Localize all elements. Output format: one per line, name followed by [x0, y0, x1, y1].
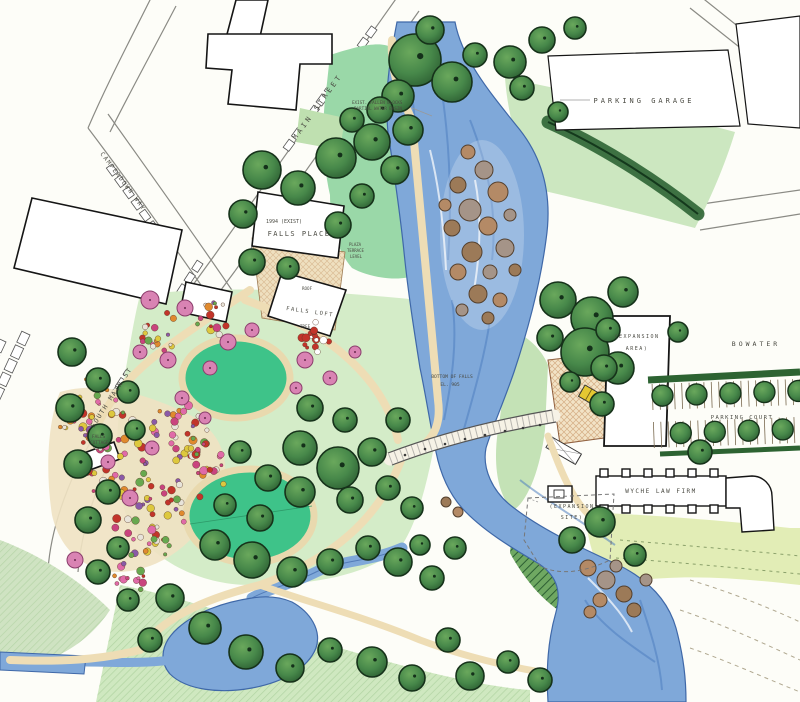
tree-center-dot	[431, 26, 434, 29]
tree-center-dot	[543, 36, 546, 39]
tree-canopy	[156, 584, 184, 612]
flower-dot	[126, 576, 130, 580]
tree-canopy	[255, 465, 281, 491]
tree-canopy	[58, 338, 86, 366]
street-tree	[686, 384, 708, 406]
flower-dot	[138, 534, 144, 540]
tree-canopy	[229, 200, 257, 228]
flower-dot	[149, 497, 152, 500]
flower-dot	[146, 477, 151, 482]
tree-center-dot	[253, 258, 256, 261]
flower-dot	[171, 418, 179, 426]
tree-canopy	[333, 408, 357, 432]
tree-center-dot	[399, 92, 403, 96]
flowering-tree-dot	[107, 461, 109, 463]
tree-canopy	[357, 647, 387, 677]
tree-canopy	[668, 322, 688, 342]
flower-dot	[92, 489, 95, 492]
tree-canopy	[537, 325, 563, 351]
tree-canopy	[381, 156, 409, 184]
boulder	[459, 199, 481, 221]
flower-dot	[180, 408, 187, 415]
tree-canopy	[624, 544, 646, 566]
tree-canopy	[317, 549, 343, 575]
tree-center-dot	[311, 404, 314, 407]
boulder	[640, 574, 652, 586]
tree-center-dot	[511, 58, 515, 62]
flower-dot	[151, 536, 157, 542]
flower-dot	[169, 431, 176, 438]
flower-dot	[198, 316, 203, 321]
flower-dot	[206, 311, 214, 319]
tree-canopy	[444, 537, 466, 559]
flower-dot	[191, 436, 195, 440]
tree-center-dot	[301, 443, 305, 447]
tree-center-dot	[71, 404, 74, 407]
tree-canopy	[337, 487, 363, 513]
street-tree	[704, 421, 726, 443]
tree-center-dot	[291, 664, 294, 667]
tree-canopy	[401, 497, 423, 519]
flower-dot	[112, 524, 119, 531]
tree-center-dot	[605, 364, 608, 367]
flower-dot	[147, 504, 155, 512]
tree-canopy	[560, 372, 580, 392]
flower-dot	[174, 507, 178, 511]
flower-dot	[167, 543, 172, 548]
flower-dot	[108, 411, 115, 418]
flower-dot	[142, 575, 145, 578]
tree-canopy	[564, 17, 586, 39]
tree-center-dot	[449, 637, 452, 640]
boulder	[461, 145, 475, 159]
label-falls-place: FALLS PLACE	[268, 230, 331, 238]
boulder	[493, 293, 507, 307]
tree-center-dot	[99, 569, 102, 572]
flower-dot	[170, 315, 176, 321]
tree-canopy	[138, 628, 162, 652]
label-terrace-note-3: LEVEL	[350, 254, 363, 259]
label-tree-note: TREE	[300, 324, 311, 329]
tree-center-dot	[609, 327, 612, 330]
label-bowater: BOWATER	[732, 340, 780, 348]
tree-canopy	[75, 507, 101, 533]
boulder	[483, 265, 497, 279]
tree-center-dot	[151, 637, 154, 640]
label-parking-garage: PARKING GARAGE	[593, 97, 694, 105]
tree-center-dot	[264, 165, 269, 170]
tree-center-dot	[340, 462, 345, 467]
flower-dot	[163, 553, 167, 557]
tree-center-dot	[89, 516, 92, 519]
flower-dot	[221, 303, 225, 307]
tree-center-dot	[601, 518, 605, 522]
flower-dot	[140, 470, 147, 477]
flower-dot	[179, 511, 184, 516]
street-tree	[738, 420, 760, 442]
flower-dot	[140, 339, 145, 344]
boulder	[488, 182, 508, 202]
tree-canopy	[384, 548, 412, 576]
flower-dot	[188, 445, 194, 451]
label-expansion-area-2: AREA)	[626, 346, 649, 352]
tree-canopy	[316, 138, 356, 178]
tree-center-dot	[389, 485, 392, 488]
flower-dot	[303, 342, 307, 346]
tree-canopy	[276, 654, 304, 682]
tree-canopy	[239, 249, 265, 275]
flower-dot	[161, 490, 167, 496]
label-expansion-site-1: (EXPANSION	[549, 504, 594, 510]
tree-center-dot	[339, 221, 342, 224]
tree-canopy	[463, 43, 487, 67]
tree-canopy	[318, 638, 342, 662]
flowering-tree-dot	[149, 299, 151, 301]
flower-dot	[176, 481, 182, 487]
flower-dot	[162, 536, 169, 543]
flower-dot	[195, 452, 199, 456]
label-wyche-law-firm: WYCHE LAW FIRM	[625, 488, 697, 495]
tree-center-dot	[353, 117, 356, 120]
tree-canopy	[107, 537, 129, 559]
street-tree	[772, 419, 794, 441]
flower-dot	[185, 431, 190, 436]
tree-center-dot	[99, 377, 102, 380]
boulder	[610, 560, 622, 572]
boulder	[439, 199, 451, 211]
label-falls-place-note: 1994 (EXIST)	[266, 219, 302, 225]
tree-center-dot	[331, 558, 334, 561]
tree-center-dot	[331, 647, 334, 650]
flower-dot	[131, 537, 135, 541]
flower-dot	[205, 303, 213, 311]
tree-center-dot	[373, 658, 377, 662]
tree-canopy	[585, 507, 615, 537]
tree-canopy	[410, 535, 430, 555]
tree-center-dot	[587, 346, 593, 352]
flower-dot	[220, 464, 223, 467]
person-dot	[404, 454, 407, 457]
tree-center-dot	[456, 545, 459, 548]
tree-center-dot	[171, 594, 174, 597]
flower-dot	[218, 451, 225, 458]
tree-center-dot	[509, 659, 512, 662]
flower-dot	[173, 445, 180, 452]
flower-dot	[137, 567, 145, 575]
label-parking-court: PARKING COURT	[711, 415, 774, 421]
flower-dot	[112, 574, 116, 578]
flower-dot	[214, 306, 217, 309]
upper-lawn	[182, 338, 290, 418]
flower-dot	[139, 579, 147, 587]
tree-center-dot	[399, 417, 402, 420]
tree-canopy	[456, 662, 484, 690]
tree-canopy	[416, 16, 444, 44]
flower-dot	[83, 433, 87, 437]
tree-center-dot	[571, 379, 573, 381]
flower-dot	[209, 325, 212, 328]
tree-center-dot	[624, 288, 628, 292]
flower-dot	[79, 426, 84, 431]
person-dot	[539, 424, 542, 427]
label-expansion-site-2: SITE)	[561, 515, 584, 521]
flower-dot	[191, 424, 195, 428]
flower-dot	[152, 419, 157, 424]
tree-center-dot	[247, 647, 251, 651]
person-dot	[464, 438, 467, 441]
street-tree	[720, 382, 742, 404]
boulder	[496, 239, 514, 257]
flower-dot	[117, 453, 123, 459]
tree-canopy	[281, 171, 315, 205]
tree-center-dot	[576, 25, 579, 28]
person-dot	[444, 443, 447, 446]
flower-dot	[137, 576, 140, 579]
tree-center-dot	[399, 558, 402, 561]
flower-dot	[62, 425, 66, 429]
street-tree	[652, 385, 674, 407]
label-expansion-area-1: (EXPANSION	[614, 334, 659, 340]
tree-canopy	[559, 527, 585, 553]
flowering-tree-dot	[204, 417, 206, 419]
tree-center-dot	[636, 552, 639, 555]
flower-dot	[310, 327, 317, 334]
flower-dot	[195, 447, 200, 452]
tree-canopy	[277, 557, 307, 587]
boulder	[479, 217, 497, 235]
flowering-tree-dot	[181, 397, 183, 399]
tree-canopy	[494, 46, 526, 78]
tree-canopy	[234, 542, 270, 578]
tree-center-dot	[119, 545, 122, 548]
tree-canopy	[189, 612, 221, 644]
flower-dot	[143, 549, 148, 554]
tree-center-dot	[346, 417, 349, 420]
tree-canopy	[214, 494, 236, 516]
flower-dot	[313, 319, 319, 325]
flower-dot	[143, 462, 146, 465]
tree-canopy	[297, 395, 323, 421]
tree-canopy	[540, 282, 576, 318]
tree-canopy	[350, 184, 374, 208]
tree-center-dot	[206, 624, 210, 628]
flower-dot	[193, 461, 200, 468]
tree-center-dot	[701, 449, 704, 452]
flower-dot	[116, 437, 121, 442]
tree-canopy	[243, 151, 281, 189]
tree-center-dot	[241, 449, 244, 452]
flowering-tree-dot	[74, 559, 76, 561]
tree-center-dot	[541, 677, 544, 680]
flower-dot	[121, 411, 125, 415]
flower-dot	[58, 425, 62, 429]
label-bottom-of-falls-1: BOTTOM OF FALLS	[431, 374, 473, 380]
tree-center-dot	[136, 427, 138, 429]
boulder	[469, 285, 487, 303]
tree-canopy	[117, 589, 139, 611]
tree-center-dot	[338, 153, 343, 158]
tree-center-dot	[454, 77, 459, 82]
flower-dot	[168, 486, 176, 494]
tree-canopy	[86, 560, 110, 584]
flower-dot	[119, 475, 125, 481]
label-river-note-1: EXIST. FALLEN BLOCKS	[352, 100, 403, 105]
tree-center-dot	[289, 265, 292, 268]
tree-canopy	[56, 394, 84, 422]
flower-dot	[213, 324, 221, 332]
flower-dot	[223, 323, 230, 330]
tree-center-dot	[109, 489, 112, 492]
boulder	[597, 571, 615, 589]
label-bottom-of-falls-2: EL. 905	[440, 382, 460, 388]
boulder	[509, 264, 521, 276]
tree-center-dot	[73, 348, 76, 351]
flower-dot	[81, 440, 85, 444]
tree-center-dot	[559, 109, 561, 111]
street-tree	[670, 422, 692, 444]
site-plan-drawing: MAIN STREET CAMPERDOWN WAY SOUTH MAIN ST…	[0, 0, 800, 702]
tree-center-dot	[261, 514, 264, 517]
label-terrace-note-1: PLAZA	[349, 242, 362, 247]
tree-canopy	[529, 27, 555, 53]
tree-canopy	[436, 628, 460, 652]
tree-canopy	[86, 368, 110, 392]
tree-center-dot	[679, 329, 681, 331]
flower-dot	[200, 467, 208, 475]
flower-dot	[115, 581, 119, 585]
tree-center-dot	[413, 505, 416, 508]
tree-center-dot	[216, 541, 220, 545]
tree-center-dot	[523, 85, 526, 88]
tree-canopy	[229, 635, 263, 669]
tree-center-dot	[363, 193, 366, 196]
tree-center-dot	[433, 575, 436, 578]
label-falls-cottage-2: COTTAGE	[90, 440, 109, 446]
boulder	[504, 209, 516, 221]
tree-canopy	[277, 257, 299, 279]
flower-dot	[213, 302, 217, 306]
tree-canopy	[376, 476, 400, 500]
tree-center-dot	[351, 496, 354, 499]
flower-dot	[142, 324, 148, 330]
tree-center-dot	[369, 545, 372, 548]
tree-center-dot	[299, 183, 303, 187]
flowering-tree-dot	[329, 377, 331, 379]
tree-center-dot	[253, 555, 257, 559]
tree-canopy	[608, 277, 638, 307]
flower-dot	[169, 343, 172, 346]
flower-dot	[202, 442, 205, 445]
tree-center-dot	[559, 295, 563, 299]
label-river-note-2: PARTIAL WATER BASIN	[354, 106, 402, 111]
tree-canopy	[200, 530, 230, 560]
flower-dot	[121, 561, 126, 566]
flowering-tree-dot	[139, 351, 141, 353]
person-dot	[424, 448, 427, 451]
tree-center-dot	[396, 166, 399, 169]
tree-canopy	[358, 438, 386, 466]
boulder	[462, 242, 482, 262]
flowering-tree-dot	[151, 447, 153, 449]
tree-center-dot	[619, 364, 623, 368]
flower-dot	[166, 333, 170, 337]
street-tree	[754, 381, 776, 403]
label-terrace-note-2: TERRACE	[347, 248, 364, 253]
boulder	[584, 606, 596, 618]
flower-dot	[155, 336, 161, 342]
flower-dot	[136, 478, 144, 486]
boulder	[441, 497, 451, 507]
tree-center-dot	[409, 126, 413, 130]
tree-center-dot	[551, 334, 554, 337]
tree-center-dot	[476, 52, 479, 55]
boulder	[475, 161, 493, 179]
flowering-tree-dot	[304, 359, 306, 361]
tree-center-dot	[603, 401, 606, 404]
flowering-tree-dot	[295, 387, 297, 389]
flower-dot	[207, 467, 213, 473]
flower-dot	[197, 494, 203, 500]
tree-canopy	[393, 115, 423, 145]
tree-canopy	[285, 477, 315, 507]
flower-dot	[125, 529, 132, 536]
flower-dot	[150, 344, 155, 349]
flower-dot	[181, 519, 186, 524]
tree-center-dot	[421, 542, 423, 544]
flowering-tree-dot	[251, 329, 253, 331]
tree-center-dot	[269, 474, 272, 477]
tree-center-dot	[79, 460, 82, 463]
flower-dot	[154, 432, 159, 437]
flower-dot	[169, 441, 174, 446]
tree-center-dot	[417, 53, 423, 59]
flower-dot	[132, 517, 140, 525]
flower-dot	[302, 334, 310, 342]
parking-garage-building	[548, 50, 740, 130]
tree-canopy	[340, 108, 364, 132]
boulder	[616, 586, 632, 602]
tree-canopy	[229, 441, 251, 463]
tree-canopy	[528, 668, 552, 692]
flower-dot	[148, 526, 156, 534]
tree-canopy	[96, 480, 120, 504]
flower-dot	[147, 542, 151, 546]
tree-center-dot	[301, 488, 305, 492]
boulder	[627, 603, 641, 617]
flowering-tree-dot	[184, 307, 186, 309]
tree-center-dot	[226, 502, 229, 505]
flower-dot	[196, 471, 200, 475]
boulder	[593, 593, 607, 607]
flower-dot	[221, 481, 227, 487]
flower-dot	[195, 322, 199, 326]
tree-canopy	[497, 651, 519, 673]
tree-canopy	[399, 665, 425, 691]
tree-canopy	[591, 355, 617, 381]
tree-canopy	[548, 102, 568, 122]
flower-dot	[205, 428, 209, 432]
label-roof-note: ROOF	[302, 286, 313, 291]
tree-canopy	[510, 76, 534, 100]
boulder	[453, 507, 463, 517]
flower-dot	[151, 324, 158, 331]
flower-dot	[148, 483, 154, 489]
tree-canopy	[64, 450, 92, 478]
tree-canopy	[356, 536, 380, 560]
boulder	[456, 304, 468, 316]
boulder	[482, 312, 494, 324]
flowering-tree-dot	[354, 351, 356, 353]
